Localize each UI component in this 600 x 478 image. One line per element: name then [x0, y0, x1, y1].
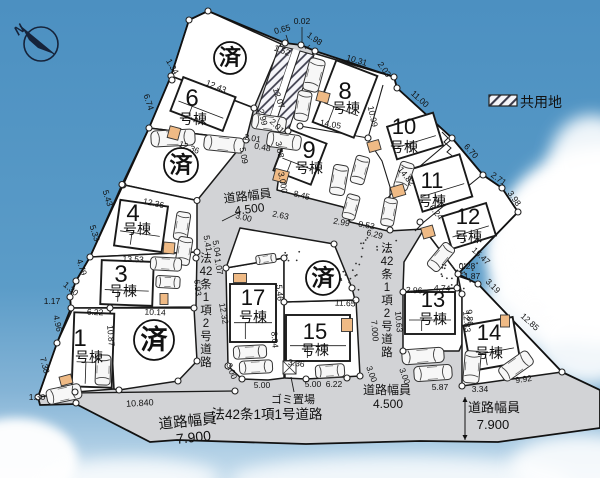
svg-text:法42条1項1号道路: 法42条1項1号道路 — [211, 406, 323, 422]
svg-text:路: 路 — [381, 345, 393, 359]
svg-text:11: 11 — [421, 168, 444, 193]
svg-text:号棟: 号棟 — [301, 342, 329, 358]
svg-text:1.87: 1.87 — [464, 271, 481, 281]
svg-text:1.17: 1.17 — [44, 296, 61, 306]
svg-text:号棟: 号棟 — [109, 283, 137, 299]
svg-text:42: 42 — [200, 266, 213, 278]
svg-text:5.00: 5.00 — [305, 379, 322, 389]
svg-text:項: 項 — [200, 304, 212, 317]
svg-text:号棟: 号棟 — [418, 193, 446, 209]
svg-text:0.02: 0.02 — [294, 16, 311, 26]
svg-text:9.86: 9.86 — [464, 309, 475, 327]
svg-text:路: 路 — [200, 355, 212, 369]
svg-text:3.34: 3.34 — [472, 384, 489, 394]
svg-text:1: 1 — [73, 325, 86, 352]
svg-text:号棟: 号棟 — [390, 139, 418, 155]
svg-text:道: 道 — [200, 342, 212, 356]
svg-text:道路幅員: 道路幅員 — [363, 382, 411, 397]
svg-text:号棟: 号棟 — [75, 349, 103, 365]
svg-text:号棟: 号棟 — [475, 345, 503, 361]
svg-text:道路幅員: 道路幅員 — [468, 400, 520, 415]
svg-text:済: 済 — [170, 152, 194, 178]
svg-text:号棟: 号棟 — [454, 229, 482, 245]
svg-text:1.30: 1.30 — [29, 392, 46, 402]
svg-text:8.04: 8.04 — [269, 331, 280, 349]
svg-text:7.900: 7.900 — [477, 417, 510, 432]
svg-text:条: 条 — [200, 277, 212, 291]
svg-text:共用地: 共用地 — [520, 94, 562, 110]
svg-text:号棟: 号棟 — [295, 160, 323, 176]
svg-text:17: 17 — [241, 285, 265, 310]
svg-text:10.87: 10.87 — [105, 325, 117, 347]
svg-text:10.840: 10.840 — [126, 397, 154, 408]
svg-text:道: 道 — [381, 332, 393, 346]
svg-text:12: 12 — [456, 204, 480, 229]
svg-text:42: 42 — [381, 256, 394, 268]
svg-text:5.00: 5.00 — [254, 380, 271, 390]
svg-text:6: 6 — [185, 85, 198, 112]
svg-text:条: 条 — [381, 267, 393, 281]
svg-text:14: 14 — [477, 320, 501, 345]
svg-text:済: 済 — [219, 45, 242, 70]
svg-text:2: 2 — [203, 318, 209, 330]
svg-text:号棟: 号棟 — [239, 309, 267, 325]
svg-text:0.28: 0.28 — [459, 261, 476, 271]
svg-text:10: 10 — [392, 114, 416, 139]
svg-text:5.46: 5.46 — [274, 284, 285, 302]
svg-text:2: 2 — [384, 308, 390, 320]
svg-text:6.22: 6.22 — [326, 379, 343, 389]
svg-text:法: 法 — [200, 251, 212, 265]
svg-text:号棟: 号棟 — [419, 311, 447, 327]
svg-text:号棟: 号棟 — [123, 221, 151, 237]
svg-text:10.63: 10.63 — [393, 311, 405, 333]
svg-text:済: 済 — [141, 324, 169, 355]
svg-text:13: 13 — [421, 287, 445, 312]
svg-text:号棟: 号棟 — [179, 111, 207, 127]
svg-text:15: 15 — [303, 319, 327, 344]
svg-text:5.87: 5.87 — [432, 382, 449, 392]
svg-text:号: 号 — [200, 330, 212, 343]
svg-text:済: 済 — [312, 265, 336, 291]
svg-text:号棟: 号棟 — [332, 100, 360, 116]
svg-text:号: 号 — [381, 320, 393, 333]
svg-text:項: 項 — [381, 294, 393, 307]
svg-text:法: 法 — [381, 241, 393, 255]
svg-text:7.000: 7.000 — [369, 320, 381, 342]
svg-text:1: 1 — [203, 292, 209, 304]
svg-text:4.500: 4.500 — [373, 397, 403, 411]
svg-text:11.65: 11.65 — [335, 297, 356, 308]
svg-text:1: 1 — [384, 282, 390, 294]
svg-text:6.22: 6.22 — [87, 307, 104, 318]
svg-text:10.14: 10.14 — [144, 306, 166, 317]
svg-text:ゴミ置場: ゴミ置場 — [271, 392, 315, 406]
